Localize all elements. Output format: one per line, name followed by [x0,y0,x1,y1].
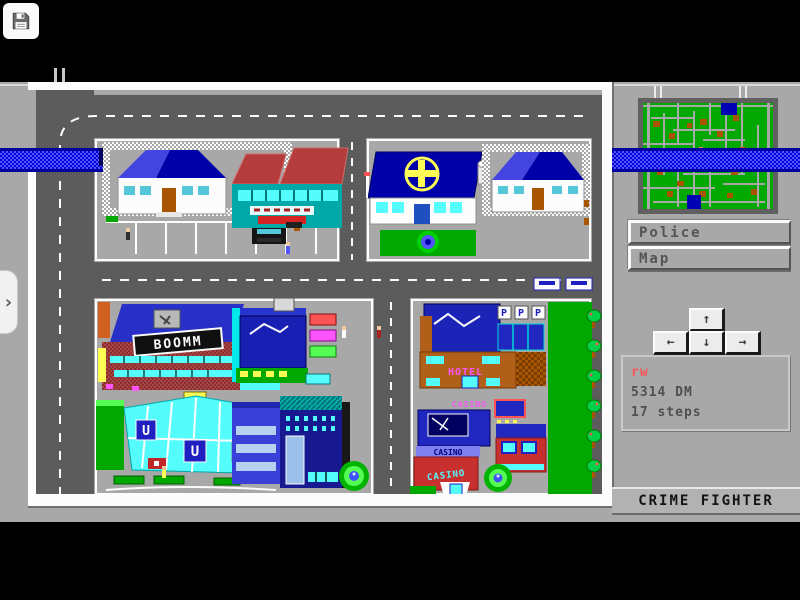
city-map: BOOMM [36,90,602,494]
river-end-cap [99,148,103,166]
pedestrian [342,326,346,338]
casino-sign-roof: CASINO [434,448,463,457]
city-frame-bottom [28,494,612,506]
minimap-pond [721,103,737,115]
player-name: rw [631,363,788,383]
money-value: 5314 DM [631,383,788,403]
police-car [566,278,592,290]
bench [154,476,184,484]
svg-text:U: U [142,424,150,439]
casino-sign-top: CASINO [452,400,487,409]
dpad-down-button[interactable]: ↓ [689,331,725,355]
game-title-banner: CRIME FIGHTER [612,487,800,515]
parking-sign-p: P [498,306,511,319]
arrow-right-icon: → [739,335,747,350]
river-band-right [612,148,800,172]
pedestrian [286,242,290,254]
map-button-label: Map [639,251,670,267]
building-hotel: P P P HOTEL [420,304,546,388]
game-title: CRIME FIGHTER [638,493,774,509]
minimap-pond [687,195,701,209]
dpad-left-button[interactable]: ← [653,331,689,355]
glass-elevator [286,436,304,484]
pedestrian [377,326,381,338]
parked-cars [306,314,336,384]
screen: BOOMM [0,0,800,600]
building-highrise [232,396,350,488]
city-frame-right [602,82,612,506]
arrow-left-icon: ← [667,335,675,350]
pedestrian [126,228,130,240]
building-gunshop [232,148,348,228]
police-car [534,278,560,290]
parking-sign-p: P [532,306,545,319]
river-band-left [0,148,103,172]
dpad-up-button[interactable]: ↑ [689,308,725,332]
building-casino: CASINO CASINO CASINO [410,400,546,494]
status-panel: rw 5314 DM 17 steps [621,355,790,431]
svg-text:P: P [518,308,524,319]
deco-line [54,68,57,82]
city-frame-top [28,82,612,90]
save-button[interactable] [3,3,39,39]
map-button[interactable]: Map [628,246,791,270]
svg-text:P: P [535,308,541,319]
building-blue-office [232,298,336,390]
parked-car [252,226,286,244]
arrow-down-icon: ↓ [703,335,711,350]
svg-text:P: P [501,308,507,319]
fountain [484,464,512,492]
subway-sign-u: U [136,420,156,440]
police-button-label: Police [639,225,702,241]
deco-line [62,68,65,82]
steps-value: 17 steps [631,403,788,423]
city-viewport[interactable]: BOOMM [36,90,602,494]
subway-sign-u: U [184,440,206,462]
chevron-right-icon: › [5,292,12,313]
sidebar-expand-tab[interactable]: › [0,270,18,334]
city-frame-left [28,166,36,506]
bench [114,476,144,484]
dpad-right-button[interactable]: → [725,331,761,355]
police-button[interactable]: Police [628,220,791,244]
parking-sign-p: P [515,306,528,319]
dpad: ↑ ← ↓ → [650,308,780,354]
fountain [339,461,369,491]
arrow-up-icon: ↑ [703,312,711,327]
pedestrian [162,466,166,478]
kiosk [495,400,525,417]
svg-text:U: U [191,444,199,460]
floppy-disk-icon [10,10,32,32]
building-bank-2 [482,144,590,225]
